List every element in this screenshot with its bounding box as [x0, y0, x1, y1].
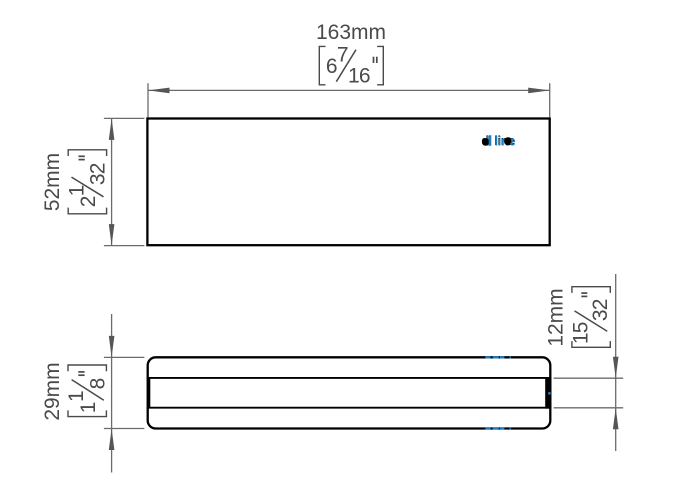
svg-text:1: 1 [65, 185, 88, 197]
svg-text:16: 16 [348, 65, 370, 88]
svg-text:2: 2 [77, 196, 100, 208]
svg-text:7: 7 [337, 44, 349, 67]
svg-text:163mm: 163mm [316, 21, 386, 44]
svg-text:6: 6 [326, 55, 338, 78]
svg-text:32: 32 [589, 299, 612, 321]
svg-text:1: 1 [77, 402, 100, 414]
svg-text:1: 1 [65, 390, 88, 402]
svg-text:29mm: 29mm [41, 362, 64, 420]
svg-text:32: 32 [86, 163, 109, 185]
svg-text:12mm: 12mm [544, 288, 567, 346]
svg-text:8: 8 [87, 378, 110, 390]
svg-text:15: 15 [569, 322, 592, 344]
svg-text:52mm: 52mm [41, 153, 64, 211]
